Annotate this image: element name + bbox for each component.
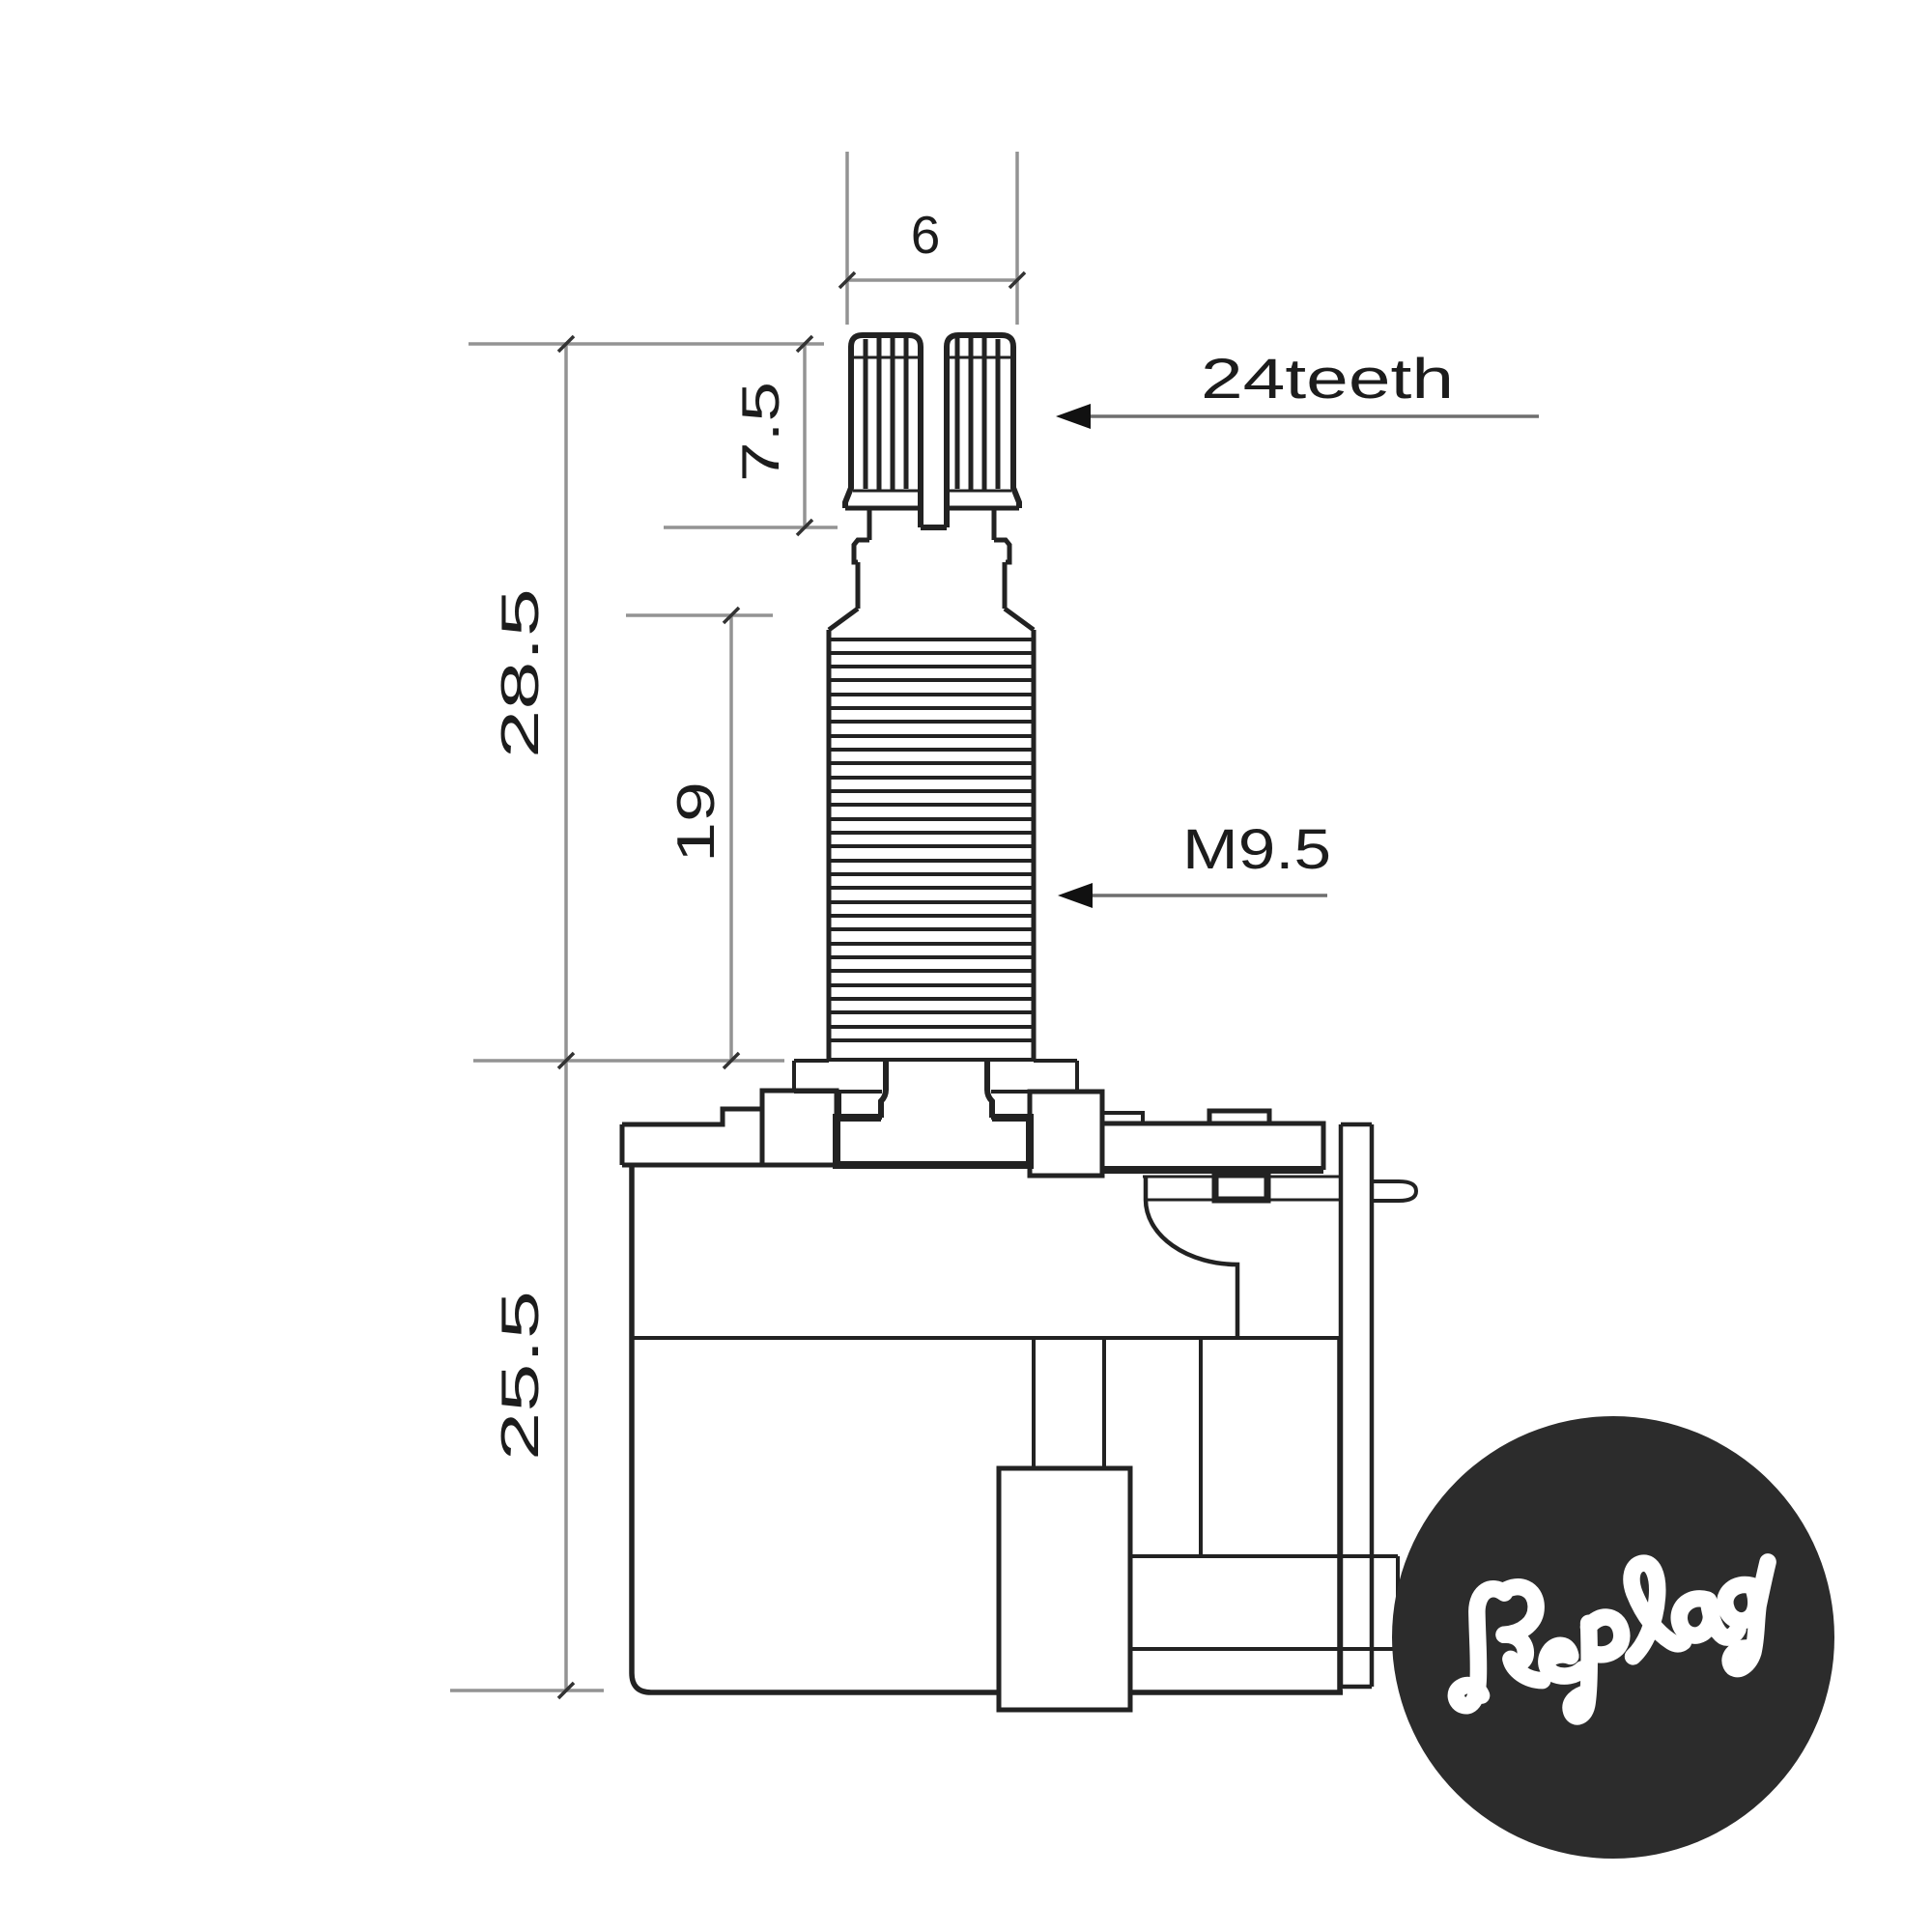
svg-text:28.5: 28.5 [490, 588, 550, 758]
svg-text:24teeth: 24teeth [1201, 348, 1454, 411]
svg-text:7.5: 7.5 [730, 382, 790, 482]
svg-text:25.5: 25.5 [490, 1291, 550, 1461]
svg-text:6: 6 [911, 205, 941, 265]
svg-text:M9.5: M9.5 [1182, 818, 1331, 881]
svg-text:19: 19 [666, 781, 725, 863]
